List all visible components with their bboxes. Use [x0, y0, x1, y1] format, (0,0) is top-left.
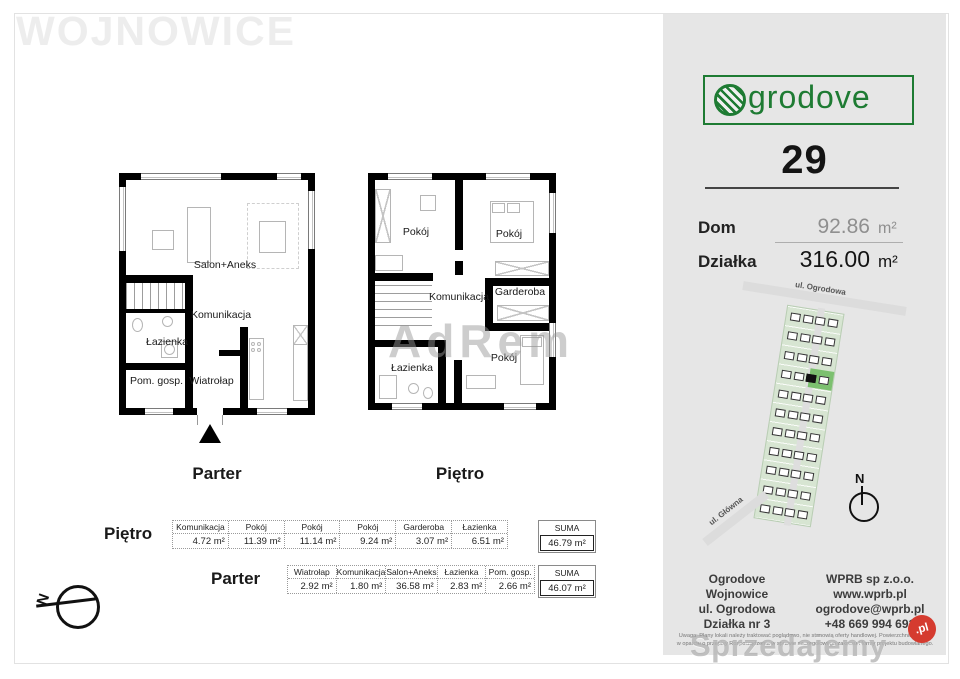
house-icon — [806, 374, 817, 383]
bed-icon — [375, 255, 403, 271]
house-icon — [803, 472, 814, 481]
wall — [455, 180, 463, 250]
window — [119, 187, 126, 251]
pietro-caption: Piętro — [400, 464, 520, 484]
table-icon — [152, 230, 174, 250]
house-icon — [772, 506, 783, 515]
sprzedajemy-watermark: Sprzedajemy — [690, 628, 887, 664]
house-icon — [775, 487, 786, 496]
house-icon — [799, 333, 810, 342]
house-icon — [821, 357, 832, 366]
toilet-icon — [423, 387, 433, 399]
house-icon — [800, 412, 811, 421]
house-icon — [809, 355, 820, 364]
pietro-floorplan: Pokój Pokój Komunikacja Garderoba Pokój … — [368, 173, 556, 410]
house-icon — [784, 351, 795, 360]
stove-burner-icon — [251, 342, 255, 346]
pietro-table-label: Piętro — [104, 524, 152, 544]
entrance-arrow-icon — [199, 424, 221, 443]
house-icon — [784, 429, 795, 438]
spec-separator — [775, 242, 903, 243]
room-label-wiatrolap: Wiatrołap — [174, 375, 249, 387]
stove-burner-icon — [257, 348, 261, 352]
parter-table-label: Parter — [211, 569, 260, 589]
window — [308, 191, 315, 249]
wall — [219, 350, 240, 356]
house-icon — [827, 318, 838, 327]
dzialka-area-unit: m² — [878, 252, 906, 272]
room-label-pokoj: Pokój — [469, 228, 549, 240]
unit-underline — [705, 187, 899, 189]
house-icon — [793, 372, 804, 381]
sink-icon — [408, 383, 419, 394]
house-icon — [815, 395, 826, 404]
house-icon — [781, 449, 792, 458]
adrem-watermark: AdRem — [388, 314, 574, 368]
house-icon — [803, 393, 814, 402]
closet-icon — [495, 261, 549, 276]
house-icon — [772, 427, 783, 436]
logo-box: grodove — [703, 75, 914, 125]
table-cell: Łazienka2.83 m² — [438, 566, 487, 593]
table-cell: Pokój9.24 m² — [340, 521, 396, 548]
map-compass-circle — [849, 492, 879, 522]
table-cell: Pokój11.14 m² — [285, 521, 341, 548]
house-icon — [790, 312, 801, 321]
suma-box-pietro: SUMA 46.79 m² — [538, 520, 596, 553]
stove-burner-icon — [257, 342, 261, 346]
house-icon — [802, 314, 813, 323]
window — [277, 173, 301, 180]
window — [257, 408, 287, 415]
room-label-lazienka: Łazienka — [127, 336, 207, 348]
house-icon — [781, 370, 792, 379]
window — [141, 173, 221, 180]
pillow-icon — [507, 203, 520, 213]
area-table-pietro: Komunikacja4.72 m² Pokój11.39 m² Pokój11… — [172, 520, 508, 549]
room-label-garderoba: Garderoba — [486, 286, 554, 298]
house-icon — [788, 489, 799, 498]
house-icon — [812, 335, 823, 344]
desk-icon — [466, 375, 496, 389]
entrance-jamb — [197, 415, 198, 425]
window — [392, 403, 422, 410]
window — [388, 173, 432, 180]
house-icon — [769, 447, 780, 456]
wall — [126, 275, 193, 283]
window — [486, 173, 530, 180]
wall — [455, 261, 463, 275]
table-cell: Pom. gosp.2.66 m² — [486, 566, 534, 593]
window — [504, 403, 536, 410]
wall — [240, 327, 248, 408]
table-cell: Wiatrołap2.92 m² — [288, 566, 337, 593]
table-cell: Komunikacja1.80 m² — [337, 566, 387, 593]
map-compass-north-label: N — [855, 471, 864, 486]
table-cell: Garderoba3.07 m² — [396, 521, 452, 548]
compass-circle — [56, 585, 100, 629]
house-icon — [818, 376, 829, 385]
house-icon — [806, 453, 817, 462]
logo-text: grodove — [748, 81, 871, 119]
parter-floorplan: Salon+Aneks Komunikacja Łazienka Pom. go… — [119, 173, 315, 415]
unit-number: 29 — [663, 138, 946, 183]
house-icon — [797, 510, 808, 519]
stairs — [126, 283, 185, 309]
desk-icon — [420, 195, 436, 211]
wall — [368, 173, 375, 410]
house-icon — [791, 470, 802, 479]
house-icon — [796, 353, 807, 362]
wall — [126, 363, 185, 370]
contact-address: Ogrodove Wojnowice ul. Ogrodowa Działka … — [672, 572, 802, 632]
wall — [485, 278, 549, 286]
house-icon — [766, 466, 777, 475]
house-icon — [800, 491, 811, 500]
suma-box-parter: SUMA 46.07 m² — [538, 565, 596, 598]
sofa-icon — [187, 207, 211, 263]
house-icon — [794, 451, 805, 460]
house-icon — [790, 391, 801, 400]
house-icon — [797, 431, 808, 440]
wojnowice-watermark: WOJNOWICE — [16, 8, 296, 55]
entrance-door-gap — [197, 408, 223, 415]
entrance-jamb — [222, 415, 223, 425]
parter-caption: Parter — [157, 464, 277, 484]
table-cell: Pokój11.39 m² — [229, 521, 285, 548]
dom-area-value: 92.86 — [736, 215, 870, 239]
fridge-icon — [293, 325, 308, 345]
toilet-icon — [132, 318, 143, 332]
house-icon — [815, 316, 826, 325]
pillow-icon — [492, 203, 505, 213]
table-cell: Łazienka6.51 m² — [452, 521, 507, 548]
house-icon — [787, 410, 798, 419]
dining-table-icon — [259, 221, 286, 253]
dom-area-unit: m² — [878, 220, 906, 238]
company-website: www.wprb.pl — [798, 587, 942, 602]
house-icon — [775, 408, 786, 417]
house-icon — [787, 331, 798, 340]
house-icon — [824, 337, 835, 346]
dzialka-area-value: 316.00 — [757, 246, 870, 273]
logo-o-icon — [714, 84, 746, 116]
house-icon — [784, 508, 795, 517]
area-table-parter: Wiatrołap2.92 m² Komunikacja1.80 m² Salo… — [287, 565, 535, 594]
bathtub-icon — [379, 375, 397, 399]
window — [145, 408, 173, 415]
house-icon — [778, 468, 789, 477]
stove-burner-icon — [251, 348, 255, 352]
house-icon — [778, 389, 789, 398]
house-icon — [812, 414, 823, 423]
dzialka-row: Działka 316.00 m² — [698, 246, 906, 273]
house-icon — [759, 504, 770, 513]
table-cell: Komunikacja4.72 m² — [173, 521, 229, 548]
room-label-komunikacja: Komunikacja — [161, 309, 281, 321]
room-label-pokoj: Pokój — [376, 226, 456, 238]
table-cell: Salon+Aneks36.58 m² — [386, 566, 437, 593]
house-icon — [809, 433, 820, 442]
window — [549, 193, 556, 233]
dom-row: Dom 92.86 m² — [698, 215, 906, 239]
room-label-salon: Salon+Aneks — [160, 259, 290, 271]
wall — [375, 273, 433, 281]
